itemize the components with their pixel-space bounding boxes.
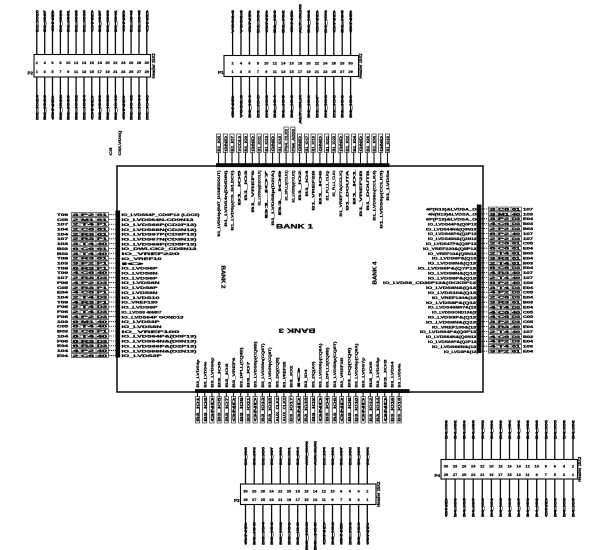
svg-text:21: 21	[278, 497, 283, 502]
svg-text:2: 2	[490, 237, 497, 241]
svg-text:B1_VREF6: B1_VREF6	[251, 171, 255, 213]
svg-text:24: 24	[269, 489, 274, 494]
svg-text:40: 40	[97, 320, 108, 324]
svg-text:B1_IO4: B1_IO4	[272, 94, 277, 118]
svg-text:T4: T4	[81, 223, 95, 227]
svg-text:103: 103	[523, 345, 533, 349]
svg-text:B1_IO4: B1_IO4	[247, 94, 252, 118]
svg-text:B1_LVDSa: B1_LVDSa	[386, 169, 390, 200]
svg-text:B4_IO8: B4_IO8	[525, 419, 530, 439]
svg-text:B3_IO8: B3_IO8	[243, 446, 248, 465]
svg-text:B3_IO4: B3_IO4	[321, 446, 326, 465]
svg-text:15: 15	[304, 497, 309, 502]
svg-text:P3: P3	[234, 498, 240, 503]
svg-text:B2_IO26: B2_IO26	[42, 94, 47, 120]
svg-text:F06: F06	[57, 310, 68, 314]
svg-text:19: 19	[105, 69, 110, 74]
svg-text:GND: GND	[348, 10, 353, 33]
svg-text:R3: R3	[498, 256, 510, 260]
svg-text:B3_IO6: B3_IO6	[269, 521, 274, 545]
svg-text:B4_IO5: B4_IO5	[462, 497, 467, 517]
svg-text:C6: C6	[498, 335, 510, 339]
svg-text:61: 61	[512, 301, 521, 305]
svg-text:P2: P2	[498, 217, 510, 221]
svg-text:B3_LVDS8p(CQ8B): B3_LVDS8p(CQ8B)	[254, 341, 258, 388]
svg-text:5: 5	[248, 69, 251, 74]
svg-text:P1: P1	[97, 330, 108, 334]
svg-text:C6: C6	[498, 296, 510, 300]
svg-text:GND: GND	[50, 95, 55, 120]
svg-text:15: 15	[90, 69, 95, 74]
svg-text:B3_IO6: B3_IO6	[330, 446, 335, 465]
svg-text:R3: R3	[81, 300, 95, 304]
svg-text:61: 61	[97, 213, 108, 217]
svg-text:M1: M1	[498, 212, 510, 216]
svg-text:20: 20	[489, 464, 493, 469]
svg-text:B1_IO41: B1_IO41	[113, 9, 118, 32]
svg-text:R3: R3	[81, 286, 95, 290]
svg-text:B1_IO4: B1_IO4	[352, 135, 356, 152]
svg-text:17: 17	[298, 69, 302, 74]
svg-text:25: 25	[261, 497, 266, 502]
svg-text:4: 4	[490, 222, 497, 226]
svg-text:B1_IO3: B1_IO3	[244, 171, 248, 201]
svg-text:GND: GND	[319, 397, 323, 422]
svg-text:22: 22	[113, 60, 118, 65]
svg-text:B4_IO1: B4_IO1	[489, 497, 494, 517]
svg-text:B3_IO14: B3_IO14	[376, 396, 380, 421]
svg-text:B1_VREF7A(CCLK): B1_VREF7A(CCLK)	[339, 170, 343, 217]
svg-text:T4: T4	[81, 252, 95, 256]
svg-text:T09: T09	[57, 300, 68, 304]
svg-text:4: 4	[73, 349, 80, 353]
svg-text:P1: P1	[97, 291, 108, 295]
svg-text:C5/LVDSQ: C5/LVDSQ	[117, 131, 122, 156]
svg-text:R3: R3	[81, 339, 95, 343]
svg-text:6: 6	[73, 339, 80, 343]
svg-text:P2: P2	[498, 350, 510, 354]
svg-text:6: 6	[490, 281, 497, 285]
svg-text:28: 28	[340, 60, 345, 65]
svg-text:GND: GND	[314, 10, 319, 33]
svg-text:B3_IO6: B3_IO6	[347, 521, 352, 545]
svg-text:11: 11	[322, 497, 327, 502]
svg-text:3: 3	[490, 320, 497, 324]
svg-text:E04: E04	[523, 305, 533, 309]
svg-text:1: 1	[366, 497, 369, 502]
svg-text:B1_IO11: B1_IO11	[258, 136, 262, 152]
svg-text:B3_IO13: B3_IO13	[261, 398, 265, 422]
svg-text:B2_IO36: B2_IO36	[97, 94, 102, 120]
svg-text:11: 11	[74, 69, 79, 74]
svg-text:2: 2	[36, 60, 39, 65]
svg-text:B1_IO9: B1_IO9	[306, 94, 311, 118]
svg-text:2: 2	[73, 232, 80, 236]
svg-text:4: 4	[490, 310, 497, 314]
svg-text:16: 16	[90, 60, 95, 65]
svg-text:R3: R3	[498, 325, 510, 329]
svg-text:7: 7	[257, 69, 259, 74]
svg-text:25: 25	[332, 69, 337, 74]
svg-text:AUX_CLK3: AUX_CLK3	[313, 440, 318, 465]
svg-text:C05: C05	[57, 218, 68, 222]
svg-text:E04: E04	[523, 350, 533, 354]
svg-text:GND: GND	[271, 136, 275, 152]
svg-text:R3: R3	[81, 344, 95, 348]
svg-text:C6: C6	[81, 228, 95, 232]
svg-text:103: 103	[523, 212, 533, 216]
svg-text:4: 4	[490, 335, 497, 339]
svg-text:20: 20	[287, 489, 291, 494]
svg-text:B3_IO0: B3_IO0	[287, 521, 292, 545]
svg-text:B1_VREF2B: B1_VREF2B	[359, 170, 363, 217]
svg-text:GND: GND	[121, 95, 126, 120]
svg-text:B1_LVDSp(CS_B/LDC0): B1_LVDSp(CS_B/LDC0)	[231, 169, 235, 230]
svg-text:4: 4	[490, 345, 497, 349]
svg-text:18: 18	[498, 464, 503, 469]
svg-text:104: 104	[57, 334, 68, 338]
svg-text:B4_IO8: B4_IO8	[444, 419, 449, 439]
svg-text:B3_LVDS7p: B3_LVDS7p	[362, 357, 366, 388]
svg-text:40: 40	[512, 325, 521, 329]
svg-text:4: 4	[358, 489, 361, 494]
svg-text:B3_IO3: B3_IO3	[225, 364, 229, 388]
svg-text:27: 27	[340, 69, 344, 74]
svg-text:B2_IO40: B2_IO40	[113, 94, 118, 120]
svg-text:B1_DOUTB: B1_DOUTB	[366, 170, 370, 210]
svg-text:GND: GND	[254, 397, 258, 422]
svg-text:B3_LVDS9p(CQ8A): B3_LVDS9p(CQ8A)	[355, 343, 359, 388]
svg-text:6: 6	[51, 60, 54, 65]
svg-text:3: 3	[490, 350, 497, 354]
svg-text:B03: B03	[523, 227, 533, 231]
svg-text:D3: D3	[512, 335, 520, 339]
svg-text:27: 27	[252, 497, 256, 502]
svg-text:2: 2	[490, 252, 497, 256]
svg-text:B3_DQ(CQ8): B3_DQ(CQ8)	[275, 357, 279, 388]
svg-text:2: 2	[490, 296, 497, 300]
svg-text:21: 21	[113, 69, 118, 74]
svg-text:4: 4	[44, 60, 47, 65]
svg-text:C05: C05	[57, 286, 68, 290]
svg-text:9: 9	[331, 497, 334, 502]
svg-text:P2: P2	[498, 291, 510, 295]
svg-text:4: 4	[490, 291, 497, 295]
svg-text:GND: GND	[298, 136, 302, 152]
svg-text:12: 12	[525, 464, 530, 469]
svg-text:3: 3	[240, 69, 243, 74]
svg-text:2: 2	[73, 218, 80, 222]
svg-text:B1_IO8: B1_IO8	[306, 9, 311, 33]
svg-text:P2: P2	[81, 315, 95, 319]
svg-text:D3: D3	[97, 310, 108, 314]
svg-text:GND: GND	[247, 10, 252, 33]
svg-text:T4: T4	[81, 242, 95, 246]
svg-text:B2_IO42: B2_IO42	[129, 94, 134, 120]
svg-text:104: 104	[57, 232, 68, 236]
svg-text:B1_IO5: B1_IO5	[281, 94, 286, 118]
svg-text:T4: T4	[81, 334, 95, 338]
svg-text:D3: D3	[512, 266, 520, 270]
svg-text:3: 3	[490, 212, 497, 216]
svg-text:E04: E04	[523, 325, 533, 329]
svg-text:GND: GND	[89, 95, 94, 120]
svg-text:B2_IO28: B2_IO28	[58, 94, 63, 120]
svg-text:40: 40	[512, 281, 521, 285]
svg-text:T09: T09	[57, 213, 68, 217]
svg-text:61: 61	[512, 252, 521, 256]
svg-text:3: 3	[73, 330, 80, 334]
svg-text:B3_IO5: B3_IO5	[218, 398, 222, 422]
svg-text:C6: C6	[81, 271, 95, 275]
svg-text:D3: D3	[512, 305, 520, 309]
svg-text:C6: C6	[498, 266, 510, 270]
svg-text:C6: C6	[81, 330, 95, 334]
svg-text:B1_IO6: B1_IO6	[323, 94, 328, 118]
svg-text:B4_IO6: B4_IO6	[516, 419, 521, 439]
svg-text:B3_IO8: B3_IO8	[347, 446, 352, 465]
svg-text:15: 15	[289, 69, 294, 74]
svg-text:C05: C05	[523, 315, 533, 319]
svg-text:B3_IO5: B3_IO5	[356, 446, 361, 465]
svg-text:T4: T4	[498, 276, 510, 280]
svg-text:40: 40	[97, 242, 108, 246]
svg-text:B1_IO6: B1_IO6	[331, 94, 336, 118]
svg-text:107: 107	[523, 232, 533, 236]
svg-text:B03: B03	[57, 247, 68, 251]
svg-text:R3: R3	[498, 271, 510, 275]
svg-text:6: 6	[73, 344, 80, 348]
svg-text:61: 61	[512, 256, 521, 260]
svg-text:18: 18	[298, 60, 303, 65]
svg-text:61: 61	[97, 218, 108, 222]
svg-text:R3: R3	[81, 237, 95, 241]
svg-text:B3_IO4: B3_IO4	[304, 368, 308, 387]
svg-text:P2: P2	[498, 281, 510, 285]
svg-text:B3_LVDS8n(CQ8T): B3_LVDS8n(CQ8T)	[261, 343, 265, 388]
svg-text:103: 103	[57, 262, 68, 266]
svg-text:B1_LVDS6n(CCLK4): B1_LVDS6n(CCLK4)	[373, 170, 377, 221]
svg-text:40: 40	[97, 325, 108, 329]
svg-text:14: 14	[82, 60, 87, 65]
svg-text:20: 20	[105, 60, 109, 65]
svg-text:B2_IO30: B2_IO30	[66, 94, 71, 120]
svg-text:10: 10	[535, 464, 539, 469]
svg-text:3: 3	[44, 69, 47, 74]
svg-text:6: 6	[490, 266, 497, 270]
svg-text:107: 107	[57, 237, 68, 241]
svg-text:5: 5	[349, 497, 352, 502]
svg-text:61: 61	[512, 247, 521, 251]
svg-text:B3_IO11: B3_IO11	[247, 398, 251, 422]
svg-text:B1_IO6: B1_IO6	[289, 94, 294, 118]
svg-text:B4_IO6: B4_IO6	[462, 419, 467, 439]
svg-text:17: 17	[296, 497, 300, 502]
svg-text:10: 10	[264, 60, 268, 65]
svg-text:21: 21	[480, 472, 485, 477]
svg-text:P2: P2	[81, 213, 95, 217]
svg-text:GND: GND	[211, 397, 215, 422]
svg-text:B03: B03	[523, 252, 533, 256]
svg-text:BANK 1: BANK 1	[276, 224, 314, 231]
svg-text:GND: GND	[339, 522, 344, 545]
svg-text:B4_IO4: B4_IO4	[507, 419, 512, 439]
svg-text:B1_IO2: B1_IO2	[281, 9, 286, 33]
svg-text:B1_IO35: B1_IO35	[82, 9, 87, 32]
svg-text:B3_LVDS5p: B3_LVDS5p	[376, 357, 380, 388]
svg-text:107: 107	[523, 271, 533, 275]
svg-text:B3_IO3: B3_IO3	[252, 446, 257, 465]
svg-text:GND: GND	[224, 136, 228, 152]
svg-text:PN4_ADD0: PN4_ADD0	[292, 129, 296, 152]
svg-text:30: 30	[348, 60, 352, 65]
svg-text:R3: R3	[81, 276, 95, 280]
svg-text:T4: T4	[81, 325, 95, 329]
svg-text:D3: D3	[512, 217, 520, 221]
svg-text:D3: D3	[512, 340, 520, 344]
svg-text:29: 29	[348, 69, 353, 74]
svg-text:B3_IO2: B3_IO2	[311, 398, 315, 422]
svg-text:C6: C6	[498, 247, 510, 251]
svg-text:ALT_CLK0: ALT_CLK0	[298, 3, 303, 33]
svg-text:B3_DPLL2(CQ8B): B3_DPLL2(CQ8B)	[326, 347, 330, 388]
svg-text:B4_IO3: B4_IO3	[498, 497, 503, 517]
svg-text:C6: C6	[498, 315, 510, 319]
svg-text:16: 16	[304, 489, 309, 494]
svg-text:D3: D3	[97, 296, 108, 300]
svg-text:B1_IO8: B1_IO8	[373, 136, 377, 152]
svg-text:3: 3	[358, 497, 361, 502]
svg-text:GND: GND	[339, 136, 343, 152]
svg-text:F06: F06	[57, 281, 68, 285]
svg-text:40: 40	[512, 212, 521, 216]
svg-text:E04: E04	[523, 217, 533, 221]
svg-text:IO_LVD3P&(13): IO_LVD3P&(13)	[444, 349, 479, 354]
svg-text:D3: D3	[97, 281, 108, 285]
svg-text:C05: C05	[57, 325, 68, 329]
svg-text:GND: GND	[89, 10, 94, 32]
svg-text:B1_LVDS6p(D1/CCLK): B1_LVDS6p(D1/CCLK)	[258, 170, 262, 206]
svg-text:B4_IO2: B4_IO2	[571, 419, 576, 439]
svg-text:Header 15X2: Header 15X2	[151, 53, 156, 79]
svg-text:B1_IO2: B1_IO2	[298, 171, 302, 201]
svg-text:22: 22	[315, 60, 320, 65]
svg-text:B03: B03	[523, 261, 533, 265]
svg-text:P1: P1	[97, 262, 108, 266]
svg-text:B3_IO15: B3_IO15	[268, 398, 272, 422]
svg-text:B1_LVDS4n(D0/DIN): B1_LVDS4n(D0/DIN)	[224, 169, 228, 226]
svg-text:11: 11	[273, 69, 278, 74]
svg-text:6: 6	[248, 60, 251, 65]
svg-text:2: 2	[490, 261, 497, 265]
svg-text:C6: C6	[498, 242, 510, 246]
svg-text:T4: T4	[498, 286, 510, 290]
svg-text:9: 9	[265, 69, 268, 74]
svg-text:B1_PLL1_CLKn: B1_PLL1_CLKn	[332, 170, 336, 197]
svg-text:B3_IO6: B3_IO6	[333, 398, 337, 422]
svg-text:R3: R3	[498, 301, 510, 305]
svg-text:B1_IO0: B1_IO0	[272, 9, 277, 33]
svg-text:2: 2	[232, 60, 235, 65]
svg-text:6: 6	[554, 464, 557, 469]
svg-text:GND: GND	[331, 10, 336, 33]
svg-text:40: 40	[97, 271, 108, 275]
svg-text:B1_IO31: B1_IO31	[66, 9, 71, 32]
svg-text:B1_IO6: B1_IO6	[255, 9, 260, 33]
svg-text:D3: D3	[97, 344, 108, 348]
svg-text:B1_IO23: B1_IO23	[332, 136, 336, 152]
svg-text:61: 61	[512, 345, 521, 349]
svg-text:B1_IO6: B1_IO6	[366, 136, 370, 152]
svg-text:B3_IO6: B3_IO6	[365, 446, 370, 465]
svg-text:B1_IO8: B1_IO8	[340, 94, 345, 118]
svg-text:GND: GND	[50, 10, 55, 32]
svg-text:2: 2	[366, 489, 369, 494]
svg-text:B03: B03	[523, 222, 533, 226]
svg-text:B3_IO7: B3_IO7	[225, 398, 229, 422]
svg-text:23: 23	[121, 69, 126, 74]
svg-text:B4_IO5: B4_IO5	[552, 419, 557, 439]
svg-text:4: 4	[73, 291, 80, 295]
svg-text:B3_IO9: B3_IO9	[239, 398, 243, 422]
svg-text:R3: R3	[81, 266, 95, 270]
svg-text:B3_LVDS4p: B3_LVDS4p	[196, 359, 200, 388]
svg-text:M1: M1	[81, 218, 95, 222]
svg-text:BANK 4: BANK 4	[373, 262, 379, 285]
svg-text:30: 30	[243, 489, 247, 494]
svg-text:4: 4	[73, 315, 80, 319]
svg-text:B1_IO5: B1_IO5	[217, 136, 221, 152]
svg-text:2: 2	[73, 305, 80, 309]
svg-text:28: 28	[453, 464, 458, 469]
svg-text:B03: B03	[57, 252, 68, 256]
svg-text:E04: E04	[523, 340, 533, 344]
svg-text:B1_IO19: B1_IO19	[312, 136, 316, 152]
svg-text:2: 2	[490, 330, 497, 334]
svg-text:3: 3	[490, 207, 497, 211]
svg-text:6: 6	[349, 489, 352, 494]
svg-text:GND: GND	[379, 136, 383, 152]
svg-text:19: 19	[489, 472, 494, 477]
svg-text:F06: F06	[57, 315, 68, 319]
svg-text:4: 4	[73, 300, 80, 304]
svg-text:B1_IO39: B1_IO39	[105, 9, 110, 32]
svg-text:23: 23	[269, 497, 274, 502]
svg-text:7: 7	[545, 472, 547, 477]
svg-text:C6: C6	[81, 247, 95, 251]
svg-text:B3_IO8: B3_IO8	[347, 398, 351, 422]
svg-text:B3_LVDS9p(CQ8T): B3_LVDS9p(CQ8T)	[268, 347, 272, 388]
svg-text:B1_IO10: B1_IO10	[386, 136, 390, 152]
svg-text:B4_IO2: B4_IO2	[534, 497, 539, 517]
svg-text:6: 6	[73, 247, 80, 251]
svg-text:PN4_CLK0: PN4_CLK0	[285, 129, 289, 152]
svg-text:AUX_CLK3: AUX_CLK3	[283, 398, 287, 422]
svg-text:40: 40	[512, 330, 521, 334]
svg-text:3: 3	[490, 286, 497, 290]
svg-text:107: 107	[57, 223, 68, 227]
svg-text:B4_IO9: B4_IO9	[525, 497, 530, 517]
svg-text:2: 2	[572, 464, 575, 469]
svg-text:B3_IO5: B3_IO5	[260, 446, 265, 465]
svg-text:P1: P1	[97, 300, 108, 304]
svg-text:GND: GND	[340, 397, 344, 422]
svg-text:R3: R3	[81, 257, 95, 261]
svg-text:1: 1	[232, 69, 235, 74]
svg-text:2: 2	[490, 276, 497, 280]
svg-text:104: 104	[57, 228, 68, 232]
svg-text:B3_LVDS4a: B3_LVDS4a	[398, 363, 402, 388]
